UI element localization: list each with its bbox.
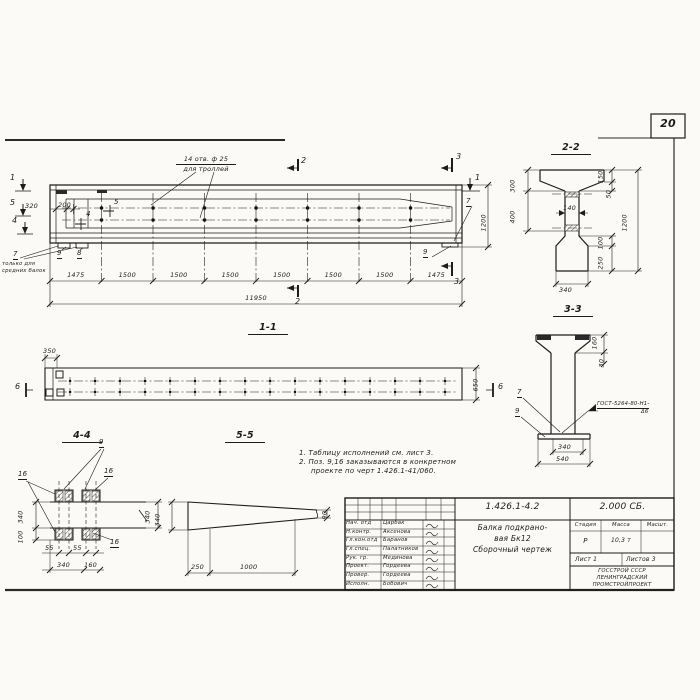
section-mark-3-top: 3 bbox=[456, 153, 461, 161]
trolley-holes-callout-line1: 14 отв. ф 25 bbox=[176, 156, 236, 165]
tb-role: Исполн. bbox=[346, 582, 370, 587]
dim-50: 50 bbox=[606, 190, 613, 199]
weld-callout-line2: Δ6 bbox=[641, 410, 648, 415]
dim-segment: 1500 bbox=[205, 272, 255, 279]
pos-7-section33: 7 bbox=[517, 389, 522, 398]
trolley-holes-callout-line2: для троллей bbox=[176, 166, 236, 173]
tb-role: Нач. отд bbox=[346, 521, 371, 526]
dim-340-section55: 340 bbox=[155, 513, 162, 526]
view-marker-4-left: 4 bbox=[12, 217, 17, 225]
pos7-note-line2: средних балок bbox=[2, 269, 46, 274]
signatures bbox=[426, 524, 438, 588]
dim-340-section33: 340 bbox=[558, 444, 571, 451]
section-mark-2-bottom: 2 bbox=[295, 298, 300, 306]
col-mass: Масса bbox=[602, 523, 640, 528]
tb-name: Царбак bbox=[383, 521, 405, 526]
pos-16-left: 16 bbox=[18, 471, 27, 480]
dim-55-b: 55 bbox=[73, 545, 82, 552]
pos-7-right: 7 bbox=[466, 198, 471, 207]
dim-total-11950: 11950 bbox=[231, 295, 281, 302]
section-3-3-title: 3-3 bbox=[553, 305, 593, 317]
tb-name: Баранов bbox=[383, 538, 408, 543]
dim-segment: 1500 bbox=[154, 272, 204, 279]
doc-title-line2: вая Бк12 bbox=[456, 535, 569, 543]
dim-segment: 1500 bbox=[360, 272, 410, 279]
col-scale: Масшт. bbox=[642, 523, 673, 528]
dim-540: 540 bbox=[556, 456, 569, 463]
note-line3: проекте по черт 1.426.1-41/060. bbox=[311, 468, 436, 475]
note-line1: 1. Таблицу исполнений см. лист 3. bbox=[299, 450, 434, 457]
doc-title-line3: Сборочный чертеж bbox=[456, 546, 569, 554]
dim-300: 300 bbox=[510, 179, 517, 192]
dim-1200-elevation: 1200 bbox=[481, 214, 488, 231]
dim-340-left-section44: 340 bbox=[18, 510, 25, 523]
mass-value: 10,3 т bbox=[602, 538, 640, 544]
dim-200: 200 bbox=[58, 202, 71, 209]
tb-name: Палатников bbox=[383, 547, 418, 552]
flag-5: 5 bbox=[114, 199, 119, 206]
tb-role: Гл.кон.отд bbox=[346, 538, 378, 543]
dim-340-right-section44: 340 bbox=[145, 510, 152, 523]
sheet-number: 20 bbox=[651, 118, 685, 129]
org-line2: ЛЕНИНГРАДСКИЙ bbox=[570, 576, 674, 581]
dim-segment: 1475 bbox=[51, 272, 101, 279]
drawing-sheet: 20 14 отв. ф 25 для троллей 320 200 5 4 … bbox=[0, 0, 700, 700]
dim-140: 140 bbox=[563, 205, 576, 212]
dim-160-section44: 160 bbox=[84, 562, 97, 569]
dim-400: 400 bbox=[510, 210, 517, 223]
dim-150: 150 bbox=[598, 170, 605, 183]
elevation-view bbox=[15, 158, 492, 307]
view-marker-1-left: 1 bbox=[10, 174, 15, 182]
col-stage: Стадия bbox=[571, 523, 600, 528]
pos-9-section44: 9 bbox=[99, 439, 104, 448]
section-2-2-title: 2-2 bbox=[551, 143, 591, 155]
tb-role: Провер. bbox=[346, 573, 369, 578]
pos-7-left: 7 bbox=[13, 251, 18, 260]
dim-segment: 1475 bbox=[411, 272, 461, 279]
sheets-label: Листов 3 bbox=[626, 557, 656, 563]
org-line3: ПРОМСТРОЙПРОЕКТ bbox=[570, 583, 674, 588]
dim-350: 350 bbox=[43, 348, 56, 355]
tb-name: Бобович bbox=[383, 582, 407, 587]
view-marker-6-left: 6 bbox=[15, 383, 20, 391]
tb-role: Гл.спец. bbox=[346, 547, 371, 552]
view-marker-6-right: 6 bbox=[498, 383, 503, 391]
dim-55-a: 55 bbox=[45, 545, 54, 552]
tb-name: Гордеева bbox=[383, 573, 411, 578]
pos-9-left: 9 bbox=[57, 250, 62, 259]
dim-segment: 1500 bbox=[102, 272, 152, 279]
pos-8-left: 8 bbox=[77, 250, 82, 259]
view-marker-1-right: 1 bbox=[475, 174, 480, 182]
dim-segment: 1500 bbox=[257, 272, 307, 279]
pos7-note-line1: только для bbox=[2, 262, 35, 267]
pos-9-right: 9 bbox=[423, 249, 428, 258]
dim-100: 100 bbox=[598, 236, 605, 249]
dim-1000: 1000 bbox=[240, 564, 257, 571]
tb-name: Гордеева bbox=[383, 564, 411, 569]
section-4-4-title: 4-4 bbox=[62, 431, 102, 443]
pos-16-bottom: 16 bbox=[110, 539, 119, 548]
view-marker-5-left: 5 bbox=[10, 199, 15, 207]
tb-name: Мединова bbox=[383, 556, 413, 561]
dim-250: 250 bbox=[598, 256, 605, 269]
section-mark-3-bottom: 3 bbox=[454, 278, 459, 286]
doc-number: 1.426.1-4.2 bbox=[460, 503, 565, 512]
dim-340-bottom-section44: 340 bbox=[57, 562, 70, 569]
note-line2: 2. Поз. 9,16 заказываются в конкретном bbox=[299, 459, 456, 466]
org-line1: ГОССТРОЙ СССР bbox=[570, 569, 674, 574]
section-mark-2-top: 2 bbox=[301, 157, 306, 165]
dim-100-section44: 100 bbox=[18, 530, 25, 543]
dim-320: 320 bbox=[25, 203, 38, 210]
dim-250-section55: 250 bbox=[191, 564, 204, 571]
dim-650: 650 bbox=[473, 378, 480, 391]
tb-role: Проект. bbox=[346, 564, 369, 569]
section-1-1-title: 1-1 bbox=[248, 323, 288, 335]
flag-4: 4 bbox=[86, 211, 91, 218]
tb-role: Н.контр. bbox=[346, 530, 371, 535]
dim-1200-section: 1200 bbox=[622, 214, 629, 231]
tb-role: Рук. гр. bbox=[346, 556, 368, 561]
doc-code: 2.000 СБ. bbox=[575, 503, 670, 512]
dim-30: 30 bbox=[599, 359, 606, 368]
section-5-5-title: 5-5 bbox=[225, 431, 265, 443]
sheet-label: Лист 1 bbox=[575, 557, 597, 563]
drawing-canvas bbox=[0, 0, 700, 700]
dim-segment: 1500 bbox=[308, 272, 358, 279]
stage-value: Р bbox=[571, 538, 600, 545]
dim-160: 160 bbox=[592, 336, 599, 349]
doc-title-line1: Балка подкрано- bbox=[456, 524, 569, 532]
tb-name: Аксенова bbox=[383, 530, 411, 535]
pos-16-right: 16 bbox=[104, 468, 113, 477]
pos-9-section33: 9 bbox=[515, 408, 520, 417]
section-1-1 bbox=[26, 354, 493, 403]
section-4-4 bbox=[26, 449, 162, 573]
dim-90: 90 bbox=[322, 511, 329, 520]
dim-340-section22: 340 bbox=[559, 287, 572, 294]
